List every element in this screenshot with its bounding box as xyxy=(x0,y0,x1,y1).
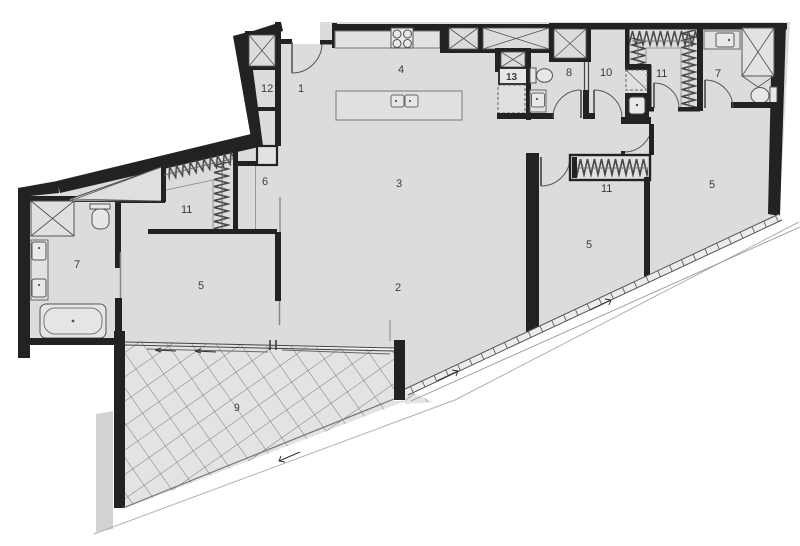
svg-text:11: 11 xyxy=(601,183,612,195)
svg-text:6: 6 xyxy=(262,176,268,188)
svg-text:1: 1 xyxy=(298,83,304,95)
svg-text:4: 4 xyxy=(398,64,404,76)
svg-text:7: 7 xyxy=(715,68,721,80)
svg-text:10: 10 xyxy=(600,67,612,79)
svg-text:13: 13 xyxy=(506,72,518,83)
svg-text:5: 5 xyxy=(709,179,715,191)
svg-text:12: 12 xyxy=(261,83,273,95)
svg-text:11: 11 xyxy=(656,68,667,80)
svg-text:11: 11 xyxy=(181,204,192,216)
svg-text:3: 3 xyxy=(396,178,402,190)
svg-text:8: 8 xyxy=(566,67,572,79)
svg-text:5: 5 xyxy=(198,280,204,292)
svg-text:9: 9 xyxy=(234,402,240,414)
svg-text:5: 5 xyxy=(586,239,592,251)
svg-text:7: 7 xyxy=(74,259,80,271)
svg-text:2: 2 xyxy=(395,282,401,294)
